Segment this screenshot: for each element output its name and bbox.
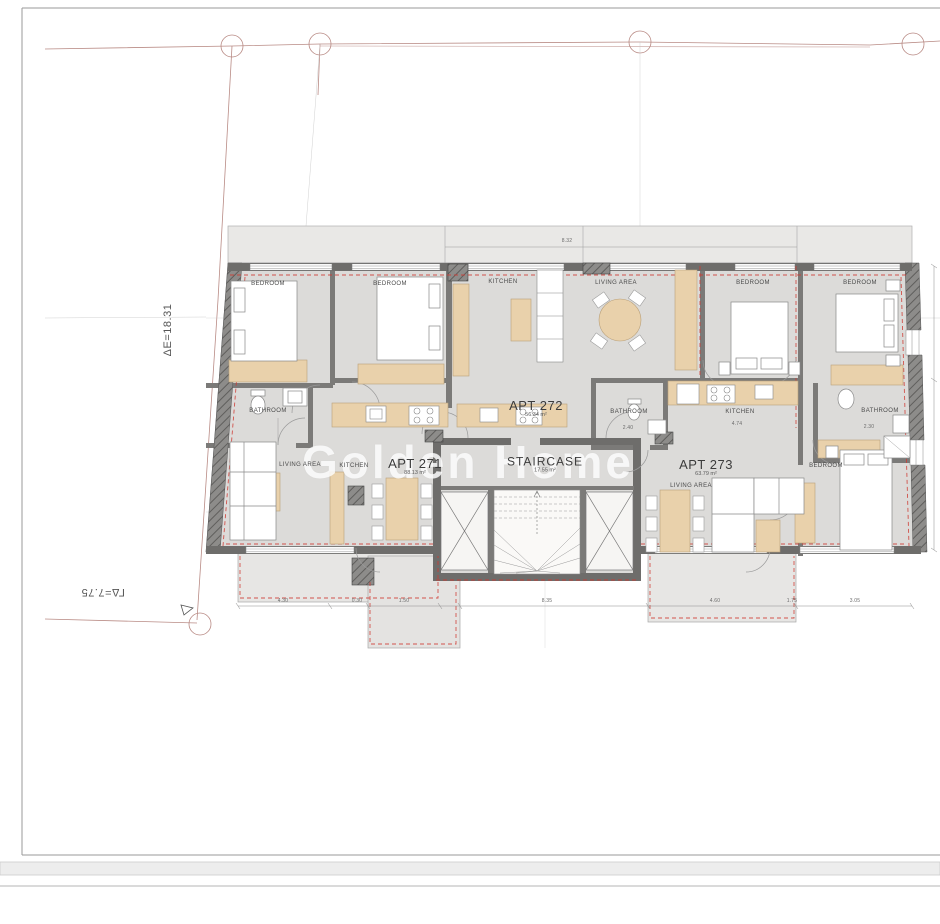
kitchen-tall-unit bbox=[453, 284, 469, 376]
dimension-text: 0.30 bbox=[352, 598, 363, 604]
kitchen-cabinet bbox=[677, 384, 699, 404]
room-label-bathroom: BATHROOM bbox=[610, 409, 647, 415]
room-label-bedroom: BEDROOM bbox=[736, 280, 770, 286]
bathroom-sink bbox=[893, 415, 909, 433]
elevation-annotation-bottom: ΓΔ=7.75 bbox=[81, 586, 125, 598]
kitchen-sink bbox=[755, 385, 773, 399]
coffee-table bbox=[756, 520, 780, 552]
room-label-living-area: LIVING AREA bbox=[595, 280, 637, 286]
survey-marker-icon bbox=[189, 613, 211, 635]
dimension-text: 3.05 bbox=[850, 598, 861, 604]
top-wall bbox=[228, 263, 912, 271]
watermark: Golden Home bbox=[302, 435, 634, 489]
room-label-bathroom: BATHROOM bbox=[249, 408, 286, 414]
room-label-bedroom: BEDROOM bbox=[251, 281, 285, 287]
staircase-steps bbox=[494, 490, 580, 574]
apartment-name: APT 271 bbox=[388, 456, 442, 471]
toilet-tank bbox=[628, 399, 641, 404]
sofa bbox=[230, 442, 276, 540]
elevation-annotation-left: ΔE=18.31 bbox=[162, 304, 174, 357]
wardrobe bbox=[229, 360, 307, 382]
dining-table bbox=[660, 490, 690, 552]
staircase-name: STAIRCASE bbox=[507, 455, 583, 469]
dimension-text: 2.30 bbox=[864, 424, 875, 430]
toilet-tank bbox=[251, 390, 265, 396]
round-dining-table bbox=[599, 299, 641, 341]
apartment-name: APT 272 bbox=[509, 398, 563, 413]
apartment-name: APT 273 bbox=[679, 457, 733, 472]
room-label-bedroom: BEDROOM bbox=[809, 463, 843, 469]
bathroom-sink bbox=[648, 420, 666, 434]
dimension-text: 8.35 bbox=[542, 598, 553, 604]
room-label-kitchen: KITCHEN bbox=[339, 463, 368, 469]
room-label-bathroom: BATHROOM bbox=[861, 408, 898, 414]
wardrobe bbox=[831, 365, 903, 385]
dimension-text: 1.75 bbox=[787, 598, 798, 604]
room-label-bedroom: BEDROOM bbox=[843, 280, 877, 286]
sofa bbox=[712, 478, 754, 552]
room-label-kitchen: KITCHEN bbox=[725, 409, 754, 415]
floor-plan-sheet: Golden Home ΔE=18.31 ΓΔ=7.75 APT 271 88.… bbox=[0, 0, 940, 924]
apartment-label-271: APT 271 88.13 m² bbox=[388, 456, 442, 476]
upper-balcony bbox=[228, 226, 912, 263]
apartment-label-272: APT 272 56.34 m² bbox=[509, 398, 563, 418]
stove bbox=[409, 406, 439, 425]
dimension-text: 4.60 bbox=[710, 598, 721, 604]
room-label-living-area: LIVING AREA bbox=[670, 483, 712, 489]
stove bbox=[707, 385, 735, 403]
dimension-text: 4.30 bbox=[278, 598, 289, 604]
tv-unit bbox=[675, 270, 697, 370]
dimension-text: 1.50 bbox=[399, 598, 410, 604]
level-triangle-marker bbox=[181, 605, 193, 615]
kitchen-island bbox=[511, 299, 531, 341]
wardrobe bbox=[358, 364, 444, 384]
dimension-text: 2.40 bbox=[623, 425, 634, 431]
toilet bbox=[838, 389, 854, 409]
room-label-kitchen: KITCHEN bbox=[488, 279, 517, 285]
staircase-label: STAIRCASE 17.55 m² bbox=[507, 455, 583, 474]
dimension-text: 4.74 bbox=[732, 421, 743, 427]
dimension-text: 8.32 bbox=[562, 238, 573, 244]
kitchen-sink bbox=[480, 408, 498, 422]
room-label-living-area: LIVING AREA bbox=[279, 462, 321, 468]
apartment-label-273: APT 273 63.79 m² bbox=[679, 457, 733, 477]
room-label-bedroom: BEDROOM bbox=[373, 281, 407, 287]
sheet-bottom-band bbox=[0, 862, 940, 886]
survey-marker-icon bbox=[902, 33, 924, 55]
